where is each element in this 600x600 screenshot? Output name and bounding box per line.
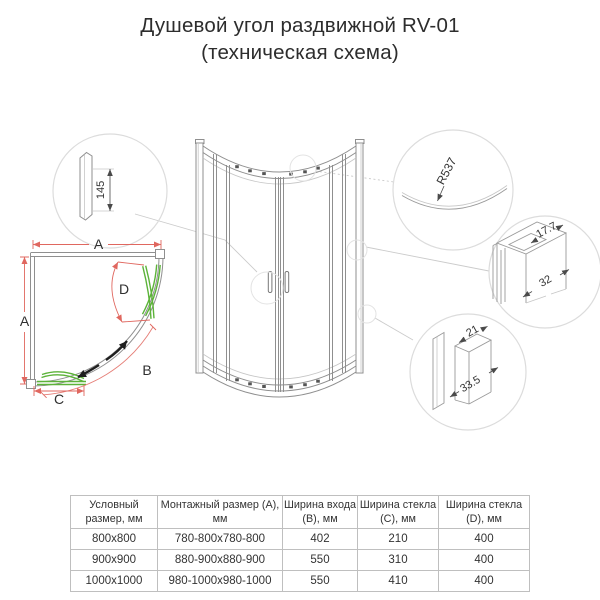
plan-arc-inner: [33, 256, 159, 382]
dim-label-17-7: 17.7: [534, 220, 559, 241]
table-header-glass-c: Ширина стекла (C), мм: [358, 496, 439, 529]
door-right-rear-stile: [330, 165, 333, 381]
table-header-glass-d: Ширина стекла (D), мм: [439, 496, 530, 529]
glass-panel-section: [433, 333, 444, 410]
cell-glass-d: 400: [439, 550, 530, 571]
front-view: [196, 140, 377, 398]
table-row: 1000x1000 980-1000x980-1000 550 410 400: [71, 571, 530, 592]
table-header-mounting-size: Монтажный размер (A), мм: [158, 496, 283, 529]
cell-glass-d: 400: [439, 571, 530, 592]
leader-line-top-profile: [366, 247, 489, 271]
detail-circle-outline: [393, 130, 513, 250]
leader-line-wall-profile: [375, 318, 413, 340]
dim-label-d: D: [119, 281, 129, 297]
size-table: Условный размер, мм Монтажный размер (A)…: [70, 495, 530, 592]
cell-nominal: 800x800: [71, 529, 158, 550]
plan-left-wall: [31, 253, 35, 385]
callout-top-rail: [290, 155, 316, 181]
cell-glass-c: 210: [358, 529, 439, 550]
table-row: 900x900 880-900x880-900 550 310 400: [71, 550, 530, 571]
cell-glass-d: 400: [439, 529, 530, 550]
plan-corner-post-right: [156, 250, 165, 259]
fixed-panel-left-edge: [214, 154, 217, 373]
cell-mounting: 980-1000x980-1000: [158, 571, 283, 592]
cell-mounting: 880-900x880-900: [158, 550, 283, 571]
door-left-rear-stile: [227, 165, 230, 381]
dim-label-32: 32: [537, 273, 554, 290]
dim-label-33-5: 33.5: [458, 374, 483, 395]
detail-circle-top-profile: 17.7 32: [489, 216, 600, 328]
top-rail: [203, 146, 356, 172]
door-handle-left: [268, 272, 272, 293]
right-post: [356, 143, 363, 373]
cell-nominal: 1000x1000: [71, 571, 158, 592]
cell-mounting: 780-800x780-800: [158, 529, 283, 550]
dim-label-c: C: [54, 391, 64, 407]
leader-line-radius: [316, 171, 395, 182]
door-handle-right: [285, 272, 289, 293]
dim-label-21: 21: [464, 323, 481, 339]
door-left-lead-stile: [276, 177, 279, 392]
cell-entry: 402: [283, 529, 358, 550]
left-post: [196, 143, 203, 373]
fixed-panel-right-edge: [343, 154, 346, 373]
plan-view: A A D B C: [20, 236, 165, 407]
leader-lines: [135, 171, 489, 340]
cell-entry: 550: [283, 550, 358, 571]
cell-glass-c: 310: [358, 550, 439, 571]
table-row: 800x800 780-800x780-800 402 210 400: [71, 529, 530, 550]
roller-set: [235, 165, 320, 388]
dim-label-b: B: [142, 362, 151, 378]
plan-top-wall: [31, 253, 161, 257]
wall-profile-bar: [80, 153, 92, 221]
cell-nominal: 900x900: [71, 550, 158, 571]
slide-arrow-up: [106, 341, 127, 360]
dim-label-a-horizontal: A: [94, 236, 104, 252]
cell-entry: 550: [283, 571, 358, 592]
table-header-row: Условный размер, мм Монтажный размер (A)…: [71, 496, 530, 529]
detail-circle-wall-profile: 21 33.5: [410, 314, 526, 430]
table-header-nominal-size: Условный размер, мм: [71, 496, 158, 529]
detail-circle-radius: R537: [393, 130, 513, 250]
slide-arrow-down: [78, 365, 99, 377]
bottom-rail: [203, 360, 356, 385]
radius-label: R537: [434, 155, 460, 187]
table-header-entry-width: Ширина входа (B), мм: [283, 496, 358, 529]
detail-circle-profile-145: 145: [53, 134, 167, 248]
cell-glass-c: 410: [358, 571, 439, 592]
dim-label-a-vertical: A: [20, 313, 30, 329]
dim-label-145: 145: [95, 181, 107, 199]
